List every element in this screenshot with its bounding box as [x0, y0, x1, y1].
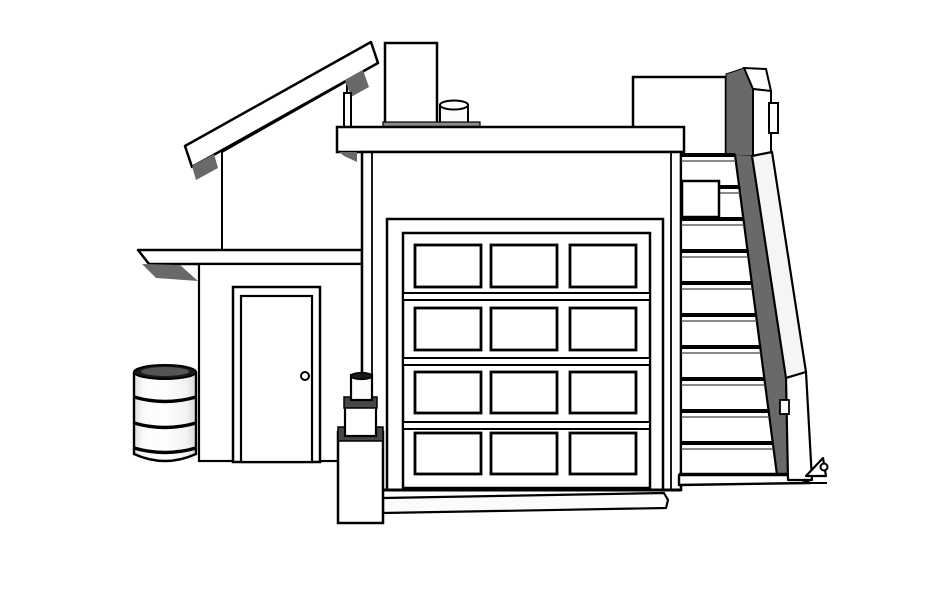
stair-step: [681, 443, 777, 475]
garage-door-panel: [570, 433, 636, 474]
stair-step: [681, 219, 748, 251]
garage-door-rail: [403, 422, 650, 429]
stair-tower-tab: [769, 103, 778, 133]
parapet-cap: [337, 127, 684, 152]
garage-door-panel: [491, 245, 557, 287]
garage-door-panel: [415, 433, 481, 474]
side-door-knob: [301, 372, 309, 380]
roof-vent-top: [440, 101, 468, 110]
stair-step: [681, 379, 769, 411]
standpipe-base: [338, 432, 383, 523]
garage-door-panel: [415, 308, 481, 350]
stair-step: [681, 283, 756, 315]
leanto-roof: [138, 250, 362, 264]
standpipe-pipe-top: [351, 373, 372, 380]
garage-door-rail: [403, 293, 650, 300]
roof-gable-board: [344, 93, 351, 129]
stair-step: [681, 411, 773, 443]
garage-door-panel: [570, 308, 636, 350]
barrel-body: [134, 372, 196, 461]
garage-door-rail: [403, 358, 650, 365]
stair-step: [681, 315, 760, 347]
spigot-knob: [821, 464, 828, 471]
stair-step: [681, 251, 752, 283]
building-drawing: [0, 0, 942, 598]
barrel-top-inner: [141, 367, 189, 376]
stair-meter-box: [682, 181, 719, 217]
garage-door-panel: [491, 433, 557, 474]
standpipe-mid: [345, 405, 376, 436]
stair-step: [681, 347, 764, 379]
garage-door-panel: [415, 372, 481, 413]
chimney: [385, 43, 437, 123]
garage-door-panel: [570, 245, 636, 287]
garage-door-panel: [491, 372, 557, 413]
garage-door-panel: [570, 372, 636, 413]
drawing-canvas: [0, 0, 942, 598]
garage-door-panel: [491, 308, 557, 350]
stair-railing-notch: [780, 400, 789, 414]
garage-door-panel: [415, 245, 481, 287]
